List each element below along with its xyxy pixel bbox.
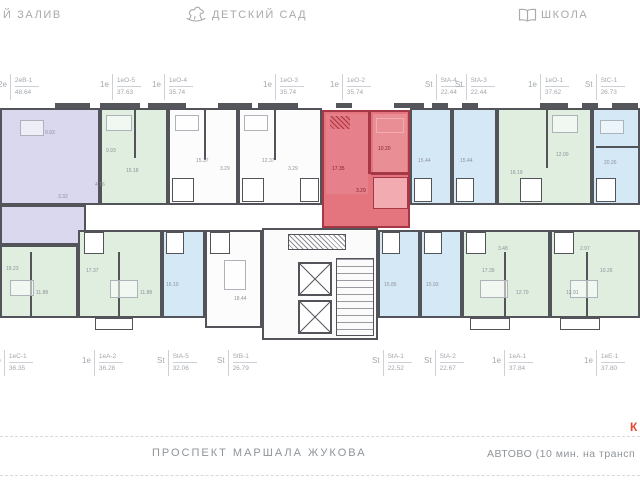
room-area-label: 12.37 <box>262 158 275 164</box>
bathroom <box>166 232 184 254</box>
room-area-label: 3.29 <box>220 166 230 172</box>
room-area-label: 15.44 <box>418 158 431 164</box>
bed <box>376 118 404 133</box>
room-area-label: 15.37 <box>196 158 209 164</box>
kindergarten-label: ДЕТСКИЙ САД <box>212 9 307 21</box>
room-area-label: 9.93 <box>45 130 55 136</box>
room-area-label-selected: 17.35 <box>332 166 345 172</box>
balcony-rail <box>258 103 298 108</box>
bed <box>106 115 132 131</box>
bathroom <box>456 178 474 202</box>
bathroom <box>382 232 400 254</box>
interior-wall <box>596 146 640 148</box>
bathroom <box>554 232 574 254</box>
room-area-label: 16.10 <box>166 282 179 288</box>
plan-label-1eo-5[interactable]: 1е 1еО-537.63 <box>100 74 143 100</box>
balcony-rail <box>582 103 598 108</box>
bathroom <box>210 232 230 254</box>
bathroom <box>300 178 319 202</box>
bed <box>10 280 34 296</box>
room-area-label: 18.23 <box>6 266 19 272</box>
interior-wall <box>371 172 410 175</box>
metro-label: АВТОВО (10 мин. на трансп <box>487 448 635 460</box>
bed <box>552 115 578 133</box>
plan-label-sta-2[interactable]: St StА-222.67 <box>424 350 466 376</box>
room-area-label: 15.18 <box>126 168 139 174</box>
plan-label-1eo-3[interactable]: 1е 1еО-335.74 <box>263 74 306 100</box>
balcony-rail <box>432 103 448 108</box>
plan-label-2ev-1[interactable]: 2е 2еВ-148.64 <box>0 74 41 100</box>
bathroom <box>520 178 542 202</box>
balcony-rail <box>218 103 252 108</box>
balcony-rail <box>148 103 186 108</box>
elevator-icon <box>298 300 332 334</box>
bed <box>110 280 138 298</box>
balcony <box>560 318 600 330</box>
bed <box>224 260 246 290</box>
room-area-label: 11.88 <box>140 290 152 296</box>
room-area-label: 15.85 <box>384 282 397 288</box>
interior-wall <box>134 108 136 158</box>
room-area-label: 12.91 <box>566 290 579 296</box>
balcony <box>95 318 133 330</box>
room-area-label: 9.93 <box>106 148 116 154</box>
plan-label-sta-3[interactable]: St StА-322.44 <box>455 74 497 100</box>
unit-2ev-1[interactable] <box>0 108 100 205</box>
plan-label-sta-1[interactable]: St StА-122.52 <box>372 350 414 376</box>
bed <box>20 120 44 136</box>
plan-label-1ea-2[interactable]: 1е 1еА-236.28 <box>82 350 125 376</box>
room-area-label: 11.88 <box>36 290 48 296</box>
room-area-label: 3.48 <box>498 246 508 252</box>
room-area-label-selected: 10.20 <box>378 146 391 152</box>
balcony-rail <box>336 103 352 108</box>
bathroom <box>596 178 616 202</box>
plan-label-1eo-1[interactable]: 1е 1еО-137.62 <box>528 74 571 100</box>
plan-label-1ee-1[interactable]: 1е 1еЕ-137.80 <box>584 350 627 376</box>
street-divider-line <box>0 475 640 476</box>
stairs <box>336 258 374 336</box>
plan-label-1eo-4[interactable]: 1е 1еО-435.74 <box>152 74 195 100</box>
room-area-label: 18.44 <box>234 296 247 302</box>
room-area-label: 10.26 <box>600 268 613 274</box>
floorplan-screen: Й ЗАЛИВ ДЕТСКИЙ САД ШКОЛА 2е 2еВ-148.64 … <box>0 0 640 480</box>
wardrobe-hatch <box>330 116 350 129</box>
room-area-label: 17.37 <box>86 268 99 274</box>
compass-letter: К <box>630 420 637 434</box>
plan-label-1eo-2-selected[interactable]: 1е 1еО-235.74 <box>330 74 373 100</box>
room-area-label: 4.76 <box>95 182 105 188</box>
room-area-label-selected: 3.29 <box>356 188 366 194</box>
bed <box>175 115 199 131</box>
plan-label-sta-5[interactable]: St StА-532.06 <box>157 350 199 376</box>
interior-wall <box>368 112 371 174</box>
bed <box>480 280 508 298</box>
room-area-label: 12.00 <box>556 152 569 158</box>
bathroom <box>172 178 194 202</box>
school-label: ШКОЛА <box>541 9 588 21</box>
balcony-rail <box>55 103 90 108</box>
room-area-label: 17.39 <box>482 268 495 274</box>
bathroom <box>466 232 486 254</box>
room-area-label: 2.97 <box>580 246 590 252</box>
selected-unit-bathroom <box>373 177 408 209</box>
plan-label-stc-1[interactable]: St StС-126.73 <box>585 74 627 100</box>
bed <box>244 115 268 131</box>
bay-label: Й ЗАЛИВ <box>3 9 62 21</box>
street-label: ПРОСПЕКТ МАРШАЛА ЖУКОВА <box>152 447 367 459</box>
room-area-label: 3.32 <box>58 194 68 200</box>
interior-wall <box>546 108 548 168</box>
room-area-label: 15.44 <box>460 158 473 164</box>
room-area-label: 12.70 <box>516 290 529 296</box>
balcony <box>470 318 510 330</box>
book-icon <box>518 8 537 28</box>
room-area-label: 20.26 <box>604 160 617 166</box>
street-divider-line <box>0 436 640 437</box>
balcony-rail <box>394 103 424 108</box>
rocking-horse-icon <box>185 6 207 28</box>
unit-2ev-1-hall[interactable] <box>0 205 86 245</box>
elevator-icon <box>298 262 332 296</box>
interior-wall <box>274 108 276 160</box>
balcony-rail <box>540 103 568 108</box>
bed <box>600 120 624 134</box>
shaft-hatch <box>288 234 346 250</box>
room-area-label: 15.93 <box>426 282 439 288</box>
bathroom <box>242 178 264 202</box>
interior-wall <box>204 108 206 160</box>
plan-label-stb-1[interactable]: St StВ-126.79 <box>217 350 259 376</box>
balcony-rail <box>462 103 478 108</box>
plan-label-1es-1[interactable]: 1е 1еС-136.35 <box>0 350 35 376</box>
balcony-rail <box>612 103 638 108</box>
bathroom <box>84 232 104 254</box>
room-area-label: 3.29 <box>288 166 298 172</box>
bathroom <box>414 178 432 202</box>
bathroom <box>424 232 442 254</box>
room-area-label: 18.19 <box>510 170 523 176</box>
plan-label-1ea-1[interactable]: 1е 1еА-137.84 <box>492 350 535 376</box>
